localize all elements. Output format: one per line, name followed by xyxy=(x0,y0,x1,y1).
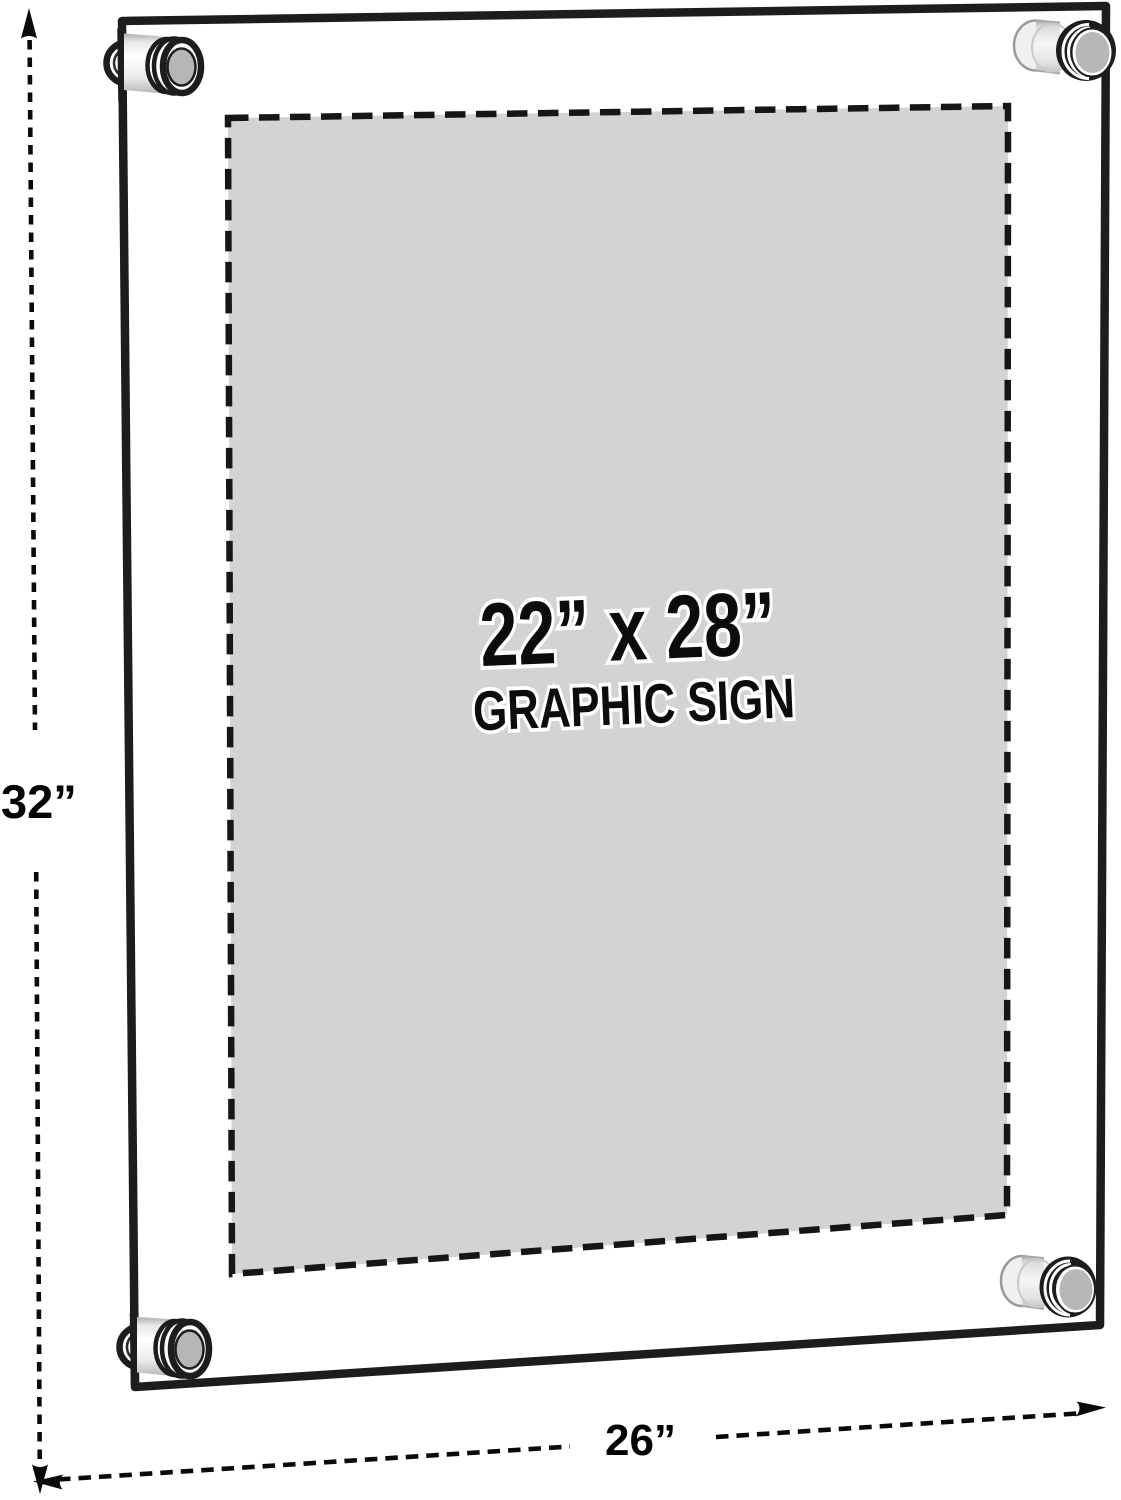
svg-text:26”: 26” xyxy=(605,1416,676,1465)
svg-text:GRAPHIC SIGN: GRAPHIC SIGN xyxy=(472,666,796,742)
svg-text:32”: 32” xyxy=(1,775,77,828)
